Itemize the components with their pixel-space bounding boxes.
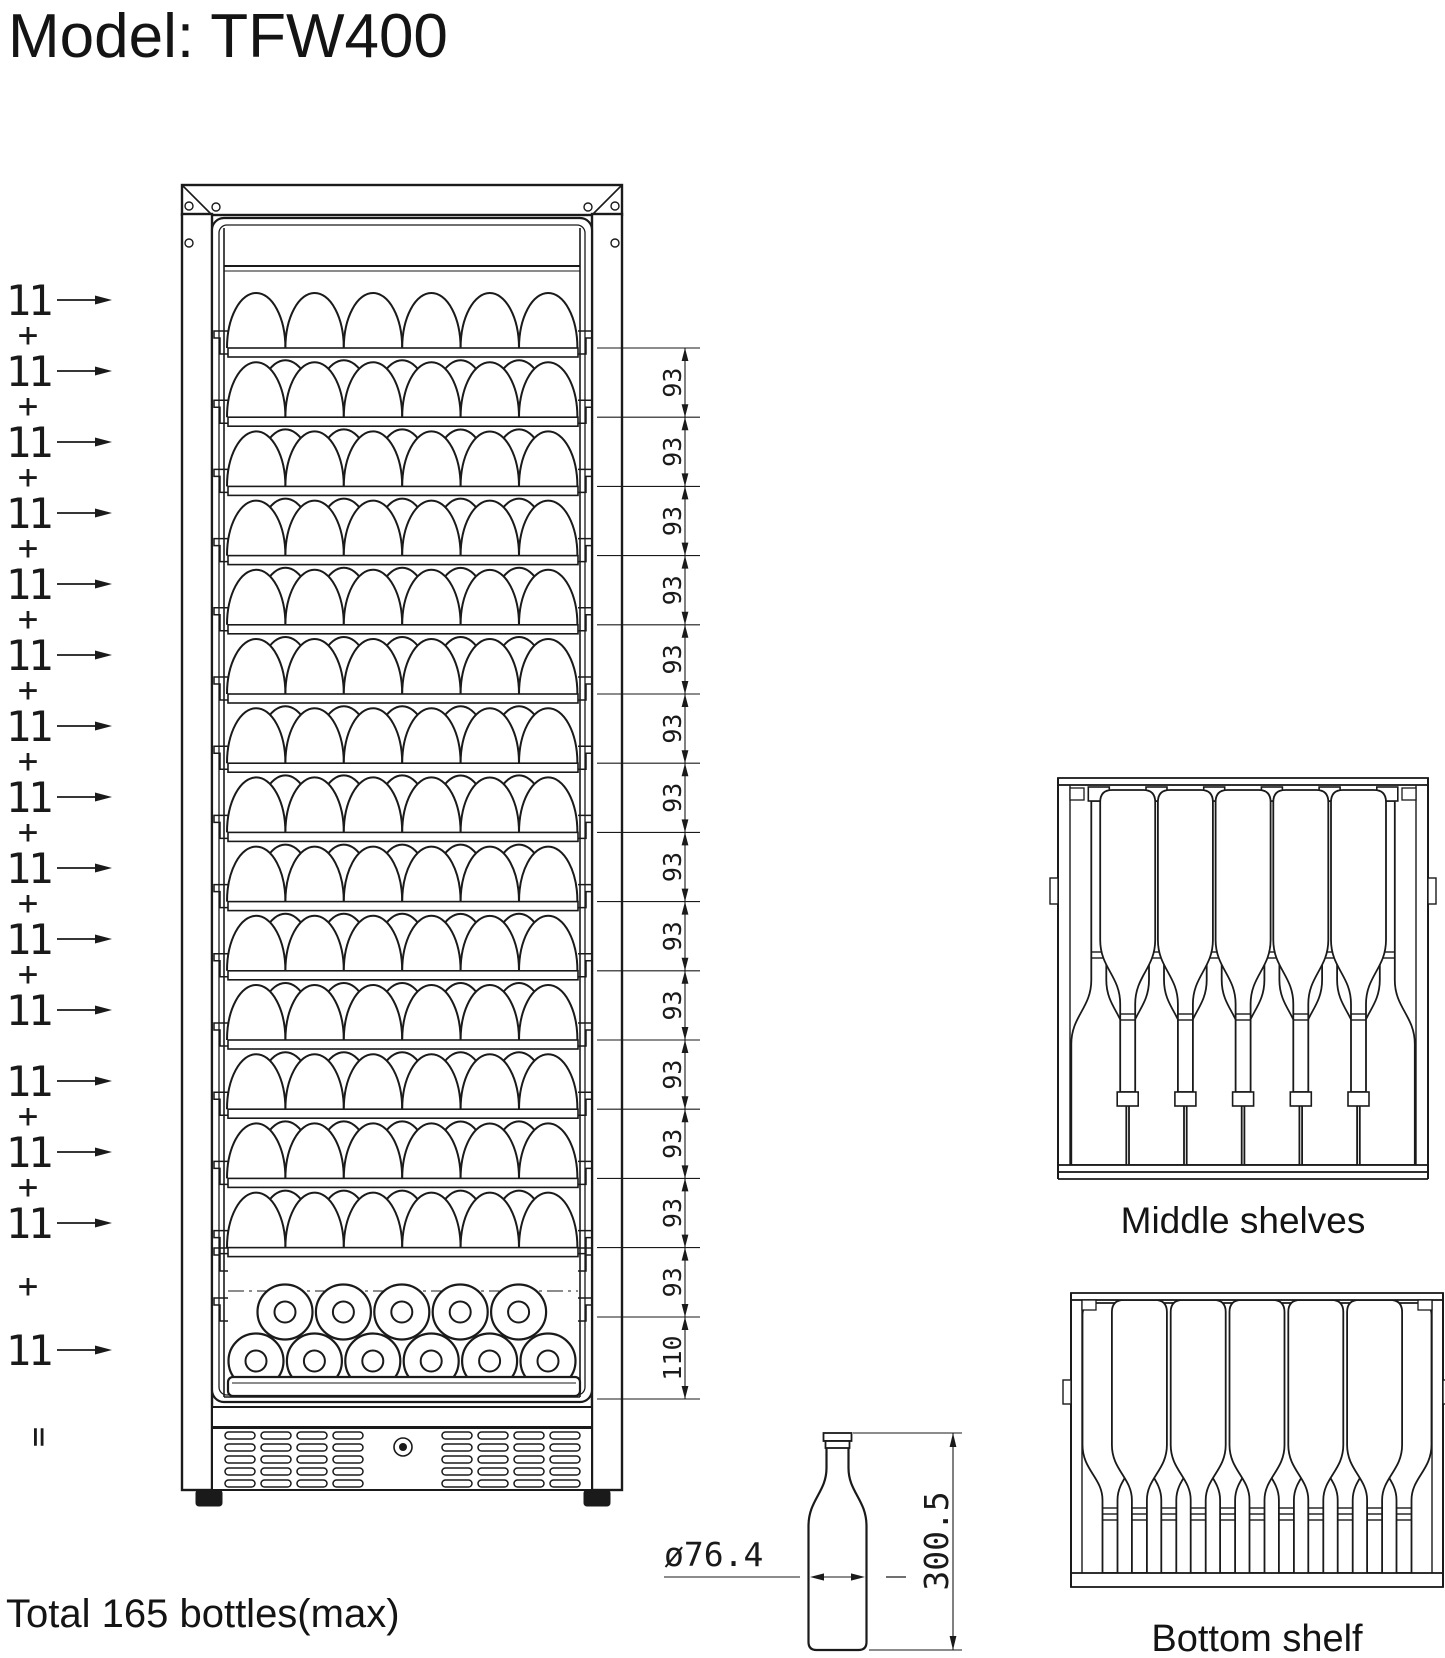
dim-spacing-label: 93 (658, 990, 687, 1020)
bottle-cap (1290, 1092, 1311, 1106)
dim-spacing-label: 93 (658, 1060, 687, 1090)
shelf-board (228, 417, 578, 426)
vent-slot (442, 1468, 472, 1475)
shelf-board (228, 763, 578, 772)
vent-slot (333, 1432, 363, 1439)
dim-arrow-down (682, 543, 689, 556)
bottle-outline (809, 1448, 867, 1650)
bottle-punt (421, 1351, 442, 1372)
dim-arrow-down (682, 819, 689, 832)
vent-grille (212, 1428, 592, 1490)
vent-slot (261, 1468, 291, 1475)
vent-slot (514, 1480, 544, 1487)
shelf-row (214, 1121, 592, 1187)
vent-slot (225, 1480, 255, 1487)
dim-arrow-down (682, 889, 689, 902)
shelf-board (228, 902, 578, 911)
dim-spacing-label: 93 (658, 368, 687, 398)
vent-slot (297, 1444, 327, 1451)
screw-icon (185, 239, 193, 247)
foot (196, 1490, 222, 1506)
dim-spacing-label: 93 (658, 437, 687, 467)
bottle-top-view-inverted (1112, 1300, 1167, 1573)
count-arrow-head (95, 1346, 112, 1355)
shelf-row (214, 360, 592, 426)
vent-slot (478, 1456, 508, 1463)
bottle-punt (304, 1351, 325, 1372)
shelf-row (214, 775, 592, 841)
vent-slot (333, 1456, 363, 1463)
count-arrow-head (95, 793, 112, 802)
vent-slot (550, 1432, 580, 1439)
vent-slot (333, 1444, 363, 1451)
dim-spacing-label: 93 (658, 1267, 687, 1297)
dim-spacing-label: 93 (658, 783, 687, 813)
bottle-cap (1117, 1092, 1138, 1106)
dim-arrow-down (682, 1096, 689, 1109)
count-arrow-head (95, 367, 112, 376)
vent-slot (550, 1480, 580, 1487)
dim-arrow-up (682, 1178, 689, 1191)
dim-spacing-label: 93 (658, 575, 687, 605)
dim-arrow-down (682, 958, 689, 971)
vent-slot (225, 1432, 255, 1439)
dim-arrow-up (682, 486, 689, 499)
count-arrow-head (95, 1148, 112, 1157)
count-arrow-head (95, 864, 112, 873)
top-rail (182, 185, 622, 215)
bottle-punt (450, 1302, 471, 1323)
vent-slot (514, 1456, 544, 1463)
shelf-notch-left (1063, 1380, 1071, 1404)
vent-slot (478, 1480, 508, 1487)
bottle-diameter-label: ø76.4 (664, 1535, 763, 1574)
bottle-punt (246, 1351, 267, 1372)
count-arrow-head (95, 509, 112, 518)
dim-arrow-down (682, 681, 689, 694)
dim-arrow-down (682, 750, 689, 763)
shelf-board (228, 1178, 578, 1187)
shelf-tab (1402, 788, 1416, 800)
vent-slot (333, 1480, 363, 1487)
equals-sign: = (19, 1427, 59, 1447)
dim-spacing-label: 93 (658, 506, 687, 536)
dim-arrow-up (950, 1433, 957, 1447)
foot (584, 1490, 610, 1506)
count-arrow-head (95, 1006, 112, 1015)
dim-bottom-label: 110 (658, 1335, 687, 1380)
dim-arrow-up (682, 902, 689, 915)
shelf-row (214, 568, 592, 634)
shelf-board (228, 625, 578, 634)
bottle-cap (1175, 1092, 1196, 1106)
bottle-punt (479, 1351, 500, 1372)
bottle-top-view-inverted (1288, 1300, 1343, 1573)
dim-arrow-up (682, 417, 689, 430)
shelf-row (214, 499, 592, 565)
bottle-punt (362, 1351, 383, 1372)
dim-arrow-up (682, 348, 689, 361)
vent-slot (225, 1456, 255, 1463)
dim-spacing-label: 93 (658, 714, 687, 744)
vent-slot (333, 1468, 363, 1475)
plus-sign: + (18, 1267, 38, 1307)
vent-slot (261, 1432, 291, 1439)
shelf-notch-right (1428, 878, 1436, 904)
shelf-top-rail (1058, 778, 1428, 785)
bottle-cap (1348, 1092, 1369, 1106)
dim-arrow-down (682, 1304, 689, 1317)
vent-slot (478, 1468, 508, 1475)
dim-arrow-up (682, 971, 689, 984)
right-side-column (592, 214, 622, 1490)
bottle-dimension-figure: ø76.4300.5 (664, 1433, 962, 1650)
dim-arrow-down (682, 1027, 689, 1040)
shelf-board (228, 486, 578, 495)
shelf-row (214, 706, 592, 772)
dim-arrow-down (682, 1235, 689, 1248)
page-title: Model: TFW400 (8, 4, 448, 69)
screw-icon (185, 202, 193, 210)
screw-icon (611, 239, 619, 247)
vent-slot (261, 1444, 291, 1451)
vent-slot (442, 1444, 472, 1451)
vent-slot (261, 1480, 291, 1487)
vent-slot (225, 1468, 255, 1475)
technical-drawing-svg: 9393939393939393939393939393110 11+11+11… (0, 0, 1445, 1658)
bottom-shelf-label: Bottom shelf (1071, 1618, 1443, 1658)
dim-spacing-label: 93 (658, 644, 687, 674)
dim-arrow-up (682, 1248, 689, 1261)
screw-icon (584, 203, 592, 211)
shelf-count-label: 11 (6, 1199, 51, 1248)
bottle-punt (275, 1302, 296, 1323)
vent-slot (297, 1432, 327, 1439)
bottom-shelf-detail (1063, 1293, 1445, 1587)
shelf-count-label: 11 (6, 1326, 51, 1375)
shelf-board (228, 971, 578, 980)
bottle-top-view-inverted (1347, 1300, 1402, 1573)
vent-slot (442, 1456, 472, 1463)
shelf-row (214, 1191, 592, 1257)
count-arrow-head (95, 296, 112, 305)
shelf-board (228, 694, 578, 703)
shelf-tab (1418, 1300, 1432, 1310)
screw-icon (399, 1443, 407, 1451)
bottle-punt (391, 1302, 412, 1323)
bottom-rail (212, 1407, 592, 1427)
dim-arrow-up (682, 1040, 689, 1053)
vent-slot (514, 1468, 544, 1475)
vent-slot (550, 1456, 580, 1463)
vent-slot (550, 1444, 580, 1451)
bottle-punt (333, 1302, 354, 1323)
shelf-row (214, 637, 592, 703)
count-arrow-head (95, 722, 112, 731)
vent-slot (297, 1468, 327, 1475)
screw-icon (611, 202, 619, 210)
bottle-top-view-inverted (1230, 1300, 1285, 1573)
drawing-page: 9393939393939393939393939393110 11+11+11… (0, 0, 1445, 1658)
shelf-board (228, 1040, 578, 1049)
bottle-cap (824, 1433, 852, 1441)
screw-icon (212, 203, 220, 211)
dim-spacing-label: 93 (658, 921, 687, 951)
bottle-punt (508, 1302, 529, 1323)
shelf-count-label: 11 (6, 986, 51, 1035)
vent-slot (550, 1468, 580, 1475)
bottle-cap-ring (826, 1441, 850, 1448)
shelf-bottom-rail (1058, 1165, 1428, 1172)
shelf-board (228, 348, 578, 357)
shelf-top-rail (1071, 1293, 1443, 1300)
count-arrow-head (95, 1219, 112, 1228)
dim-spacing-label: 93 (658, 852, 687, 882)
dim-arrow-down (682, 1386, 689, 1399)
bottle-punt (538, 1351, 559, 1372)
vent-slot (297, 1456, 327, 1463)
shelf-row (214, 983, 592, 1049)
dim-arrow-down (682, 404, 689, 417)
dim-arrow-down (682, 612, 689, 625)
dim-arrow-up (682, 694, 689, 707)
shelf-board (228, 1109, 578, 1118)
shelf-row (214, 914, 592, 980)
bottle-top-view-inverted (1171, 1300, 1226, 1573)
count-arrow-head (95, 438, 112, 447)
left-count-column: 11+11+11+11+11+11+11+11+11+11+1111+11+11… (6, 276, 112, 1447)
shelf-row (214, 1052, 592, 1118)
shelf-notch-left (1050, 878, 1058, 904)
shelf-board (228, 556, 578, 565)
vent-slot (442, 1480, 472, 1487)
total-count-label: Total 165 bottles(max) (6, 1592, 400, 1637)
dim-spacing-label: 93 (658, 1198, 687, 1228)
bottle-cap (1233, 1092, 1254, 1106)
dim-arrow-down (682, 1165, 689, 1178)
count-arrow-head (95, 935, 112, 944)
dim-arrow-up (682, 625, 689, 638)
vent-slot (261, 1456, 291, 1463)
count-arrow-head (95, 651, 112, 660)
dim-spacing-label: 93 (658, 1129, 687, 1159)
count-arrow-head (95, 1077, 112, 1086)
vent-slot (514, 1432, 544, 1439)
dim-arrow-up (682, 832, 689, 845)
shelf-row (214, 429, 592, 495)
dim-arrow-up (682, 1317, 689, 1330)
dim-arrow-up (682, 1109, 689, 1122)
dim-arrow-up (682, 763, 689, 776)
vent-slot (478, 1444, 508, 1451)
shelf-tab (1070, 788, 1084, 800)
count-arrow-head (95, 580, 112, 589)
shelf-board (228, 1248, 578, 1257)
bottle-height-label: 300.5 (917, 1491, 956, 1590)
shelf-row (214, 845, 592, 911)
dim-arrow-up (682, 556, 689, 569)
middle-shelves-label: Middle shelves (1058, 1200, 1428, 1242)
dim-arrow-down (950, 1636, 957, 1650)
vent-slot (297, 1480, 327, 1487)
bottom-tray (228, 1377, 580, 1396)
vent-slot (478, 1432, 508, 1439)
left-side-column (182, 214, 212, 1490)
middle-shelves-detail (1050, 778, 1436, 1179)
vent-slot (514, 1444, 544, 1451)
vent-slot (442, 1432, 472, 1439)
dim-arrow-down (682, 473, 689, 486)
shelf-bottom-rail (1071, 1573, 1443, 1587)
vent-slot (225, 1444, 255, 1451)
shelf-tab (1082, 1300, 1096, 1310)
shelf-board (228, 832, 578, 841)
